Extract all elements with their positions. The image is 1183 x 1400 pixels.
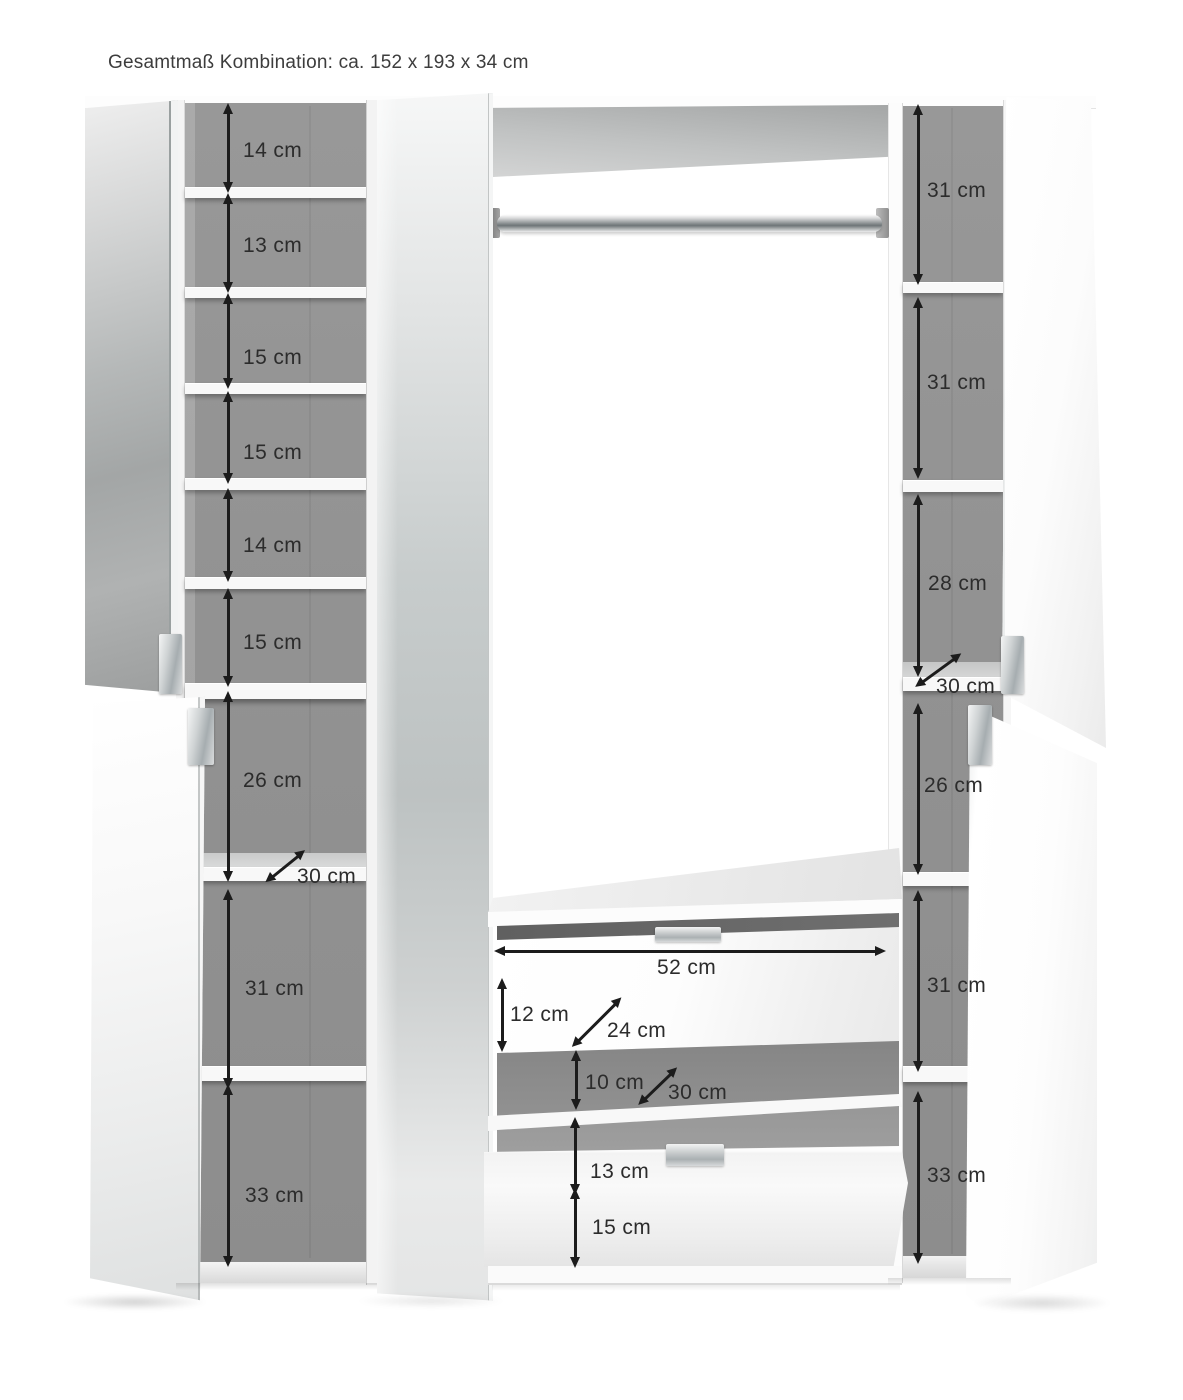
shelf-board <box>185 187 366 198</box>
dim-arrow-vertical <box>917 712 920 866</box>
dim-arrow-vertical <box>917 899 920 1063</box>
dimension-label: 12 cm <box>510 1004 569 1025</box>
upper-left-mirror-door <box>85 98 178 695</box>
page-title: Gesamtmaß Kombination: ca. 152 x 193 x 3… <box>108 52 529 74</box>
dimension-label: 30 cm <box>668 1082 727 1103</box>
left-back-panel-seam <box>309 106 311 1258</box>
shelf-board <box>185 577 366 589</box>
drawer-front <box>497 926 899 1056</box>
wardrobe-dimension-diagram: Gesamtmaß Kombination: ca. 152 x 193 x 3… <box>0 0 1183 1400</box>
dimension-label: 14 cm <box>243 535 302 556</box>
dimension-label: 31 cm <box>927 372 986 393</box>
left-base-board <box>185 1262 366 1283</box>
dimension-label: 15 cm <box>243 442 302 463</box>
dim-arrow-horizontal <box>503 950 877 953</box>
dimension-label: 10 cm <box>585 1072 644 1093</box>
floor-shadow <box>62 1294 208 1310</box>
dim-arrow-vertical <box>917 306 920 470</box>
upper-left-door-handle <box>159 634 182 694</box>
dimension-label: 15 cm <box>592 1217 651 1238</box>
left-column-frame-right <box>366 100 377 1285</box>
dimension-label: 31 cm <box>927 975 986 996</box>
flap-handle <box>666 1144 724 1166</box>
dim-arrow-vertical <box>227 202 230 284</box>
lower-right-door-handle <box>968 705 992 765</box>
dim-arrow-vertical <box>227 597 230 678</box>
shelf-board <box>185 287 366 298</box>
dimension-label: 15 cm <box>243 632 302 653</box>
shelf-board <box>903 480 1003 492</box>
dimension-label: 24 cm <box>607 1020 666 1041</box>
clothes-rail <box>497 215 882 232</box>
dim-arrow-vertical <box>227 700 230 873</box>
base-shadow <box>888 1278 1011 1285</box>
dimension-label: 26 cm <box>243 770 302 791</box>
dim-arrow-vertical <box>575 1059 578 1101</box>
dim-arrow-vertical <box>227 302 230 380</box>
dimension-label: 28 cm <box>928 573 987 594</box>
dim-arrow-vertical <box>501 987 504 1043</box>
dim-arrow-vertical <box>917 113 920 276</box>
base-shadow <box>176 1283 377 1290</box>
dimension-label: 31 cm <box>927 180 986 201</box>
dimension-label: 14 cm <box>243 140 302 161</box>
dimension-label: 13 cm <box>243 235 302 256</box>
dimension-label: 31 cm <box>245 978 304 999</box>
dimension-label: 33 cm <box>245 1185 304 1206</box>
middle-top-underside <box>493 105 888 177</box>
dim-arrow-vertical <box>227 400 230 475</box>
upper-right-door-handle <box>1001 636 1024 694</box>
dim-arrow-vertical <box>227 898 230 1080</box>
lower-left-door-handle <box>188 708 214 765</box>
dim-arrow-vertical <box>574 1126 577 1186</box>
shelf-board <box>185 383 366 394</box>
dim-arrow-vertical <box>917 503 920 668</box>
dim-arrow-vertical <box>917 1100 920 1255</box>
dimension-label: 30 cm <box>936 676 995 697</box>
floor-shadow <box>972 1294 1112 1312</box>
dimension-label: 33 cm <box>927 1165 986 1186</box>
dimension-label: 13 cm <box>590 1161 649 1182</box>
middle-left-mirror-door <box>377 93 493 1303</box>
dim-arrow-vertical <box>227 497 230 573</box>
dim-arrow-vertical <box>227 112 230 184</box>
dimension-label: 26 cm <box>924 775 983 796</box>
dim-arrow-vertical <box>227 1093 230 1258</box>
shelf-board <box>185 1066 366 1081</box>
left-divider-board <box>185 683 366 699</box>
dimension-label: 30 cm <box>297 866 356 887</box>
lower-right-door <box>966 705 1097 1310</box>
drawer-handle <box>655 927 721 942</box>
dim-arrow-vertical <box>574 1197 577 1259</box>
base-shadow <box>492 1285 900 1291</box>
dimension-label: 52 cm <box>657 957 716 978</box>
floor-shadow <box>356 1294 506 1308</box>
dimension-label: 15 cm <box>243 347 302 368</box>
lower-left-door <box>90 695 205 1307</box>
shelf-board <box>185 478 366 490</box>
bottom-base-board <box>488 1266 902 1285</box>
